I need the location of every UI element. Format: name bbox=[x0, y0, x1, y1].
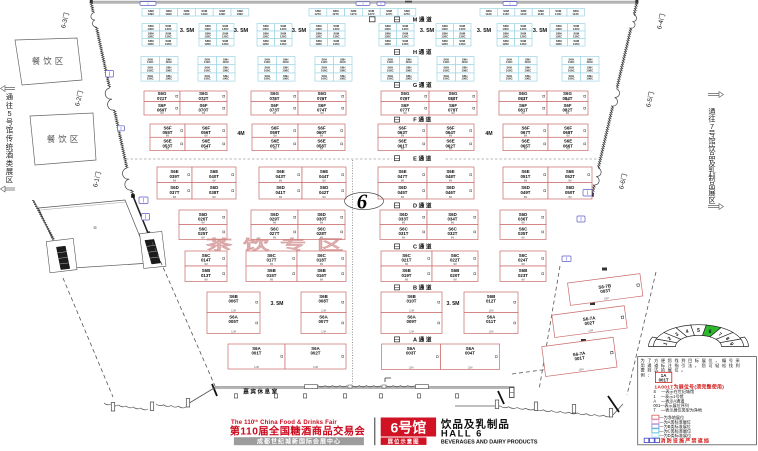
svg-text:6M: 6M bbox=[320, 279, 323, 282]
svg-text:展位示意图: 展位示意图 bbox=[388, 437, 420, 445]
svg-text:130C: 130C bbox=[333, 27, 340, 31]
svg-text:A通道: A通道 bbox=[413, 336, 433, 344]
svg-text:139C: 139C bbox=[165, 12, 172, 16]
svg-text:6M: 6M bbox=[401, 180, 404, 183]
svg-text:130C: 130C bbox=[573, 27, 580, 31]
svg-text:108C: 108C bbox=[461, 68, 468, 72]
svg-text:047T: 047T bbox=[397, 174, 407, 179]
svg-text:6M: 6M bbox=[273, 99, 276, 102]
svg-text:6M: 6M bbox=[405, 279, 408, 282]
svg-text:049T: 049T bbox=[520, 190, 530, 195]
svg-text:T —表示展位类型为净地: T —表示展位类型为净地 bbox=[653, 406, 702, 412]
svg-text:108C: 108C bbox=[264, 68, 271, 72]
svg-text:139C: 139C bbox=[183, 12, 190, 16]
svg-text:成都世纪城新国际会展中心: 成都世纪城新国际会展中心 bbox=[257, 438, 341, 446]
svg-text:110C: 110C bbox=[461, 60, 468, 64]
svg-text:003T: 003T bbox=[406, 351, 416, 356]
svg-text:128C: 128C bbox=[573, 34, 580, 38]
svg-text:013T: 013T bbox=[201, 273, 211, 278]
svg-text:126C: 126C bbox=[459, 42, 466, 46]
svg-text:12M: 12M bbox=[489, 310, 494, 313]
svg-text:6M: 6M bbox=[201, 237, 204, 240]
svg-text:113C: 113C bbox=[538, 12, 545, 16]
svg-text:113C: 113C bbox=[503, 12, 510, 16]
svg-text:040T: 040T bbox=[209, 174, 219, 179]
svg-text:110C: 110C bbox=[282, 60, 289, 64]
svg-text:6M: 6M bbox=[568, 196, 571, 199]
svg-text:011T: 011T bbox=[486, 319, 496, 324]
svg-text:032T: 032T bbox=[447, 231, 457, 236]
svg-text:12M: 12M bbox=[604, 297, 609, 301]
svg-text:12M: 12M bbox=[588, 329, 593, 333]
svg-text:D通道: D通道 bbox=[413, 202, 433, 210]
svg-text:028T: 028T bbox=[316, 231, 326, 236]
svg-text:126C: 126C bbox=[333, 42, 340, 46]
svg-text:106C: 106C bbox=[405, 77, 412, 81]
svg-text:113C: 113C bbox=[555, 12, 562, 16]
svg-text:12M: 12M bbox=[313, 366, 318, 369]
svg-text:128C: 128C bbox=[502, 34, 509, 38]
svg-text:108C: 108C bbox=[147, 68, 154, 72]
svg-text:044T: 044T bbox=[319, 174, 329, 179]
svg-text:6M: 6M bbox=[521, 263, 524, 266]
svg-text:6M: 6M bbox=[273, 222, 276, 225]
svg-text:6M: 6M bbox=[201, 222, 204, 225]
svg-text:6M: 6M bbox=[449, 134, 452, 137]
svg-text:6M: 6M bbox=[566, 148, 569, 151]
svg-text:050T: 050T bbox=[565, 190, 575, 195]
svg-text:027T: 027T bbox=[269, 231, 279, 236]
svg-text:130C: 130C bbox=[280, 27, 287, 31]
svg-text:110C: 110C bbox=[165, 60, 172, 64]
svg-text:130C: 130C bbox=[555, 27, 562, 31]
svg-text:108C: 108C bbox=[443, 68, 450, 72]
svg-text:024T: 024T bbox=[518, 258, 528, 263]
svg-text:M通道: M通道 bbox=[413, 16, 434, 24]
svg-text:6M: 6M bbox=[449, 180, 452, 183]
svg-text:051T: 051T bbox=[520, 174, 530, 179]
svg-text:128C: 128C bbox=[402, 34, 409, 38]
svg-text:106C: 106C bbox=[568, 77, 575, 81]
svg-text:6M: 6M bbox=[279, 196, 282, 199]
svg-text:106C: 106C bbox=[387, 77, 394, 81]
svg-text:3. 5M: 3. 5M bbox=[477, 28, 492, 34]
svg-text:6M: 6M bbox=[524, 196, 527, 199]
svg-text:6M: 6M bbox=[405, 263, 408, 266]
svg-text:110C: 110C bbox=[405, 60, 412, 64]
svg-text:128C: 128C bbox=[315, 34, 322, 38]
svg-text:HALL 6: HALL 6 bbox=[441, 429, 483, 440]
svg-text:6M: 6M bbox=[202, 112, 205, 115]
svg-text:005T: 005T bbox=[228, 319, 238, 324]
svg-text:6M: 6M bbox=[320, 263, 323, 266]
svg-text:12M: 12M bbox=[231, 331, 236, 334]
svg-text:039T: 039T bbox=[169, 174, 179, 179]
svg-text:128C: 128C bbox=[333, 34, 340, 38]
svg-text:6M: 6M bbox=[320, 99, 323, 102]
svg-text:6M: 6M bbox=[204, 263, 207, 266]
svg-text:6M: 6M bbox=[401, 196, 404, 199]
svg-text:015T: 015T bbox=[266, 273, 276, 278]
svg-text:126C: 126C bbox=[402, 42, 409, 46]
svg-text:110C: 110C bbox=[524, 60, 531, 64]
svg-text:消防设施严禁遮挡: 消防设施严禁遮挡 bbox=[661, 437, 711, 444]
svg-text:6M: 6M bbox=[166, 148, 169, 151]
svg-text:023T: 023T bbox=[518, 273, 528, 278]
svg-text:6M: 6M bbox=[204, 279, 207, 282]
svg-text:038T: 038T bbox=[209, 190, 219, 195]
svg-text:6M: 6M bbox=[521, 279, 524, 282]
svg-text:108C: 108C bbox=[568, 68, 575, 72]
svg-text:6M: 6M bbox=[270, 263, 273, 266]
svg-text:108C: 108C bbox=[282, 68, 289, 72]
svg-text:12M: 12M bbox=[254, 366, 259, 369]
svg-text:001T: 001T bbox=[659, 377, 669, 382]
svg-text:⊠: ⊠ bbox=[93, 225, 96, 230]
svg-text:127C: 127C bbox=[404, 12, 411, 16]
svg-text:6M: 6M bbox=[204, 148, 207, 151]
svg-text:4M: 4M bbox=[485, 131, 492, 137]
svg-text:130C: 130C bbox=[502, 27, 509, 31]
svg-text:128C: 128C bbox=[147, 34, 154, 38]
svg-text:例：: 例： bbox=[641, 371, 655, 378]
svg-text:108C: 108C bbox=[405, 68, 412, 72]
svg-text:110C: 110C bbox=[321, 60, 328, 64]
svg-text:106C: 106C bbox=[524, 77, 531, 81]
svg-text:3. 5M: 3. 5M bbox=[234, 28, 249, 34]
svg-text:106C: 106C bbox=[222, 77, 229, 81]
svg-text:022T: 022T bbox=[450, 258, 460, 263]
svg-text:C通道: C通道 bbox=[413, 243, 433, 251]
svg-text:126C: 126C bbox=[555, 42, 562, 46]
svg-text:052T: 052T bbox=[565, 174, 575, 179]
svg-text:113C: 113C bbox=[485, 12, 492, 16]
svg-text:G通道: G通道 bbox=[413, 81, 433, 89]
svg-text:130C: 130C bbox=[459, 27, 466, 31]
svg-text:139C: 139C bbox=[201, 12, 208, 16]
svg-text:012T: 012T bbox=[486, 299, 496, 304]
svg-text:127C: 127C bbox=[332, 12, 339, 16]
svg-text:127C: 127C bbox=[315, 12, 322, 16]
svg-text:6M: 6M bbox=[279, 180, 282, 183]
svg-text:6M: 6M bbox=[273, 112, 276, 115]
svg-text:127C: 127C bbox=[350, 12, 357, 16]
svg-text:126C: 126C bbox=[147, 42, 154, 46]
svg-text:016T: 016T bbox=[316, 273, 326, 278]
svg-text:第110届全国糖酒商品交易会: 第110届全国糖酒商品交易会 bbox=[230, 425, 366, 438]
svg-text:113C: 113C bbox=[572, 12, 579, 16]
svg-text:106C: 106C bbox=[264, 77, 271, 81]
svg-text:12M: 12M bbox=[321, 310, 326, 313]
svg-text:020T: 020T bbox=[450, 273, 460, 278]
svg-text:130C: 130C bbox=[222, 27, 229, 31]
svg-text:139C: 139C bbox=[237, 12, 244, 16]
svg-text:6M: 6M bbox=[568, 180, 571, 183]
svg-text:3. 5M: 3. 5M bbox=[447, 301, 460, 307]
svg-text:126C: 126C bbox=[222, 42, 229, 46]
svg-text:6M: 6M bbox=[320, 222, 323, 225]
svg-text:4M: 4M bbox=[237, 131, 244, 137]
svg-text:6M: 6M bbox=[451, 222, 454, 225]
svg-text:6M: 6M bbox=[453, 263, 456, 266]
svg-text:6M: 6M bbox=[204, 134, 207, 137]
svg-text:6M: 6M bbox=[566, 112, 569, 115]
svg-text:3. 5M: 3. 5M bbox=[271, 301, 284, 307]
svg-text:110C: 110C bbox=[568, 60, 575, 64]
svg-text:12M: 12M bbox=[409, 331, 414, 334]
svg-text:108C: 108C bbox=[222, 68, 229, 72]
svg-text:106C: 106C bbox=[165, 77, 172, 81]
svg-text:6M: 6M bbox=[402, 237, 405, 240]
svg-text:108C: 108C bbox=[204, 68, 211, 72]
svg-text:108C: 108C bbox=[165, 68, 172, 72]
svg-text:6M: 6M bbox=[451, 99, 454, 102]
svg-text:6M: 6M bbox=[521, 112, 524, 115]
svg-text:130C: 130C bbox=[315, 27, 322, 31]
svg-text:12M: 12M bbox=[409, 310, 414, 313]
svg-text:128C: 128C bbox=[520, 34, 527, 38]
svg-text:126C: 126C bbox=[204, 42, 211, 46]
svg-text:108C: 108C bbox=[524, 68, 531, 72]
svg-text:130C: 130C bbox=[520, 27, 527, 31]
svg-text:茶饮专区: 茶饮专区 bbox=[206, 237, 354, 252]
svg-text:130C: 130C bbox=[262, 27, 269, 31]
svg-text:6M: 6M bbox=[449, 196, 452, 199]
svg-text:6M: 6M bbox=[202, 99, 205, 102]
svg-text:The 110th China Food & Drinks: The 110th China Food & Drinks Fair bbox=[231, 419, 337, 426]
svg-text:108C: 108C bbox=[321, 68, 328, 72]
svg-text:B通道: B通道 bbox=[413, 284, 433, 292]
svg-text:046T: 046T bbox=[445, 190, 455, 195]
svg-text:12M: 12M bbox=[489, 331, 494, 334]
svg-text:126C: 126C bbox=[502, 42, 509, 46]
svg-text:110C: 110C bbox=[506, 60, 513, 64]
svg-text:130C: 130C bbox=[441, 27, 448, 31]
svg-text:035T: 035T bbox=[518, 231, 528, 236]
svg-text:128C: 128C bbox=[384, 34, 391, 38]
svg-text:108C: 108C bbox=[339, 68, 346, 72]
svg-text:—为D类标准展位: —为D类标准展位 bbox=[660, 432, 692, 438]
svg-text:5: 5 bbox=[697, 328, 700, 334]
svg-text:3. 5M: 3. 5M bbox=[420, 28, 435, 34]
svg-text:6M: 6M bbox=[273, 134, 276, 137]
svg-text:126C: 126C bbox=[262, 42, 269, 46]
svg-text:3. 5M: 3. 5M bbox=[292, 28, 307, 34]
svg-text:6M: 6M bbox=[521, 237, 524, 240]
svg-text:6M: 6M bbox=[521, 99, 524, 102]
svg-text:110C: 110C bbox=[586, 60, 593, 64]
svg-text:130C: 130C bbox=[204, 27, 211, 31]
svg-text:106C: 106C bbox=[204, 77, 211, 81]
svg-text:025T: 025T bbox=[198, 231, 208, 236]
svg-text:F通道: F通道 bbox=[413, 116, 432, 124]
svg-text:110C: 110C bbox=[443, 60, 450, 64]
svg-text:004T: 004T bbox=[465, 351, 475, 356]
svg-text:126C: 126C bbox=[315, 42, 322, 46]
svg-text:130C: 130C bbox=[165, 27, 172, 31]
svg-text:BEVERAGES AND DAIRY PRODUCTS: BEVERAGES AND DAIRY PRODUCTS bbox=[441, 440, 538, 446]
svg-text:126C: 126C bbox=[520, 42, 527, 46]
svg-text:6M: 6M bbox=[401, 134, 404, 137]
svg-text:嘉宾休息室: 嘉宾休息室 bbox=[242, 388, 278, 396]
svg-text:12M: 12M bbox=[409, 367, 414, 370]
svg-text:区: 区 bbox=[6, 176, 14, 185]
svg-text:130C: 130C bbox=[147, 27, 154, 31]
svg-text:6M: 6M bbox=[320, 148, 323, 151]
svg-text:130C: 130C bbox=[384, 27, 391, 31]
svg-text:6M: 6M bbox=[320, 134, 323, 137]
svg-text:002T: 002T bbox=[310, 351, 320, 356]
svg-text:007T: 007T bbox=[318, 319, 328, 324]
svg-text:108C: 108C bbox=[586, 68, 593, 72]
svg-text:6M: 6M bbox=[451, 112, 454, 115]
svg-text:6M: 6M bbox=[212, 196, 215, 199]
svg-text:6M: 6M bbox=[524, 180, 527, 183]
svg-text:126C: 126C bbox=[280, 42, 287, 46]
svg-text:12M: 12M bbox=[321, 331, 326, 334]
svg-text:6M: 6M bbox=[401, 148, 404, 151]
svg-text:126C: 126C bbox=[573, 42, 580, 46]
svg-text:106C: 106C bbox=[321, 77, 328, 81]
svg-text:128C: 128C bbox=[459, 34, 466, 38]
svg-text:6M: 6M bbox=[322, 180, 325, 183]
svg-text:3. 5M: 3. 5M bbox=[180, 28, 195, 34]
svg-text:6M: 6M bbox=[524, 134, 527, 137]
svg-text:128C: 128C bbox=[222, 34, 229, 38]
svg-text:H通道: H通道 bbox=[413, 48, 433, 56]
svg-text:6M: 6M bbox=[322, 196, 325, 199]
svg-text:009T: 009T bbox=[406, 319, 416, 324]
svg-text:6M: 6M bbox=[566, 99, 569, 102]
svg-text:餐饮区: 餐饮区 bbox=[47, 134, 82, 144]
svg-text:018T: 018T bbox=[316, 258, 326, 263]
svg-text:6M: 6M bbox=[160, 112, 163, 115]
svg-text:045T: 045T bbox=[397, 190, 407, 195]
svg-text:110C: 110C bbox=[204, 60, 211, 64]
svg-text:127C: 127C bbox=[368, 12, 375, 16]
svg-text:017T: 017T bbox=[266, 258, 276, 263]
svg-text:043T: 043T bbox=[275, 174, 285, 179]
svg-text:127C: 127C bbox=[386, 12, 393, 16]
svg-text:6M: 6M bbox=[566, 134, 569, 137]
svg-text:6M: 6M bbox=[521, 222, 524, 225]
svg-text:106C: 106C bbox=[443, 77, 450, 81]
svg-text:128C: 128C bbox=[441, 34, 448, 38]
svg-text:6M: 6M bbox=[273, 148, 276, 151]
svg-text:008T: 008T bbox=[318, 299, 328, 304]
svg-text:6M: 6M bbox=[173, 196, 176, 199]
svg-text:019T: 019T bbox=[401, 273, 411, 278]
svg-text:139C: 139C bbox=[219, 12, 226, 16]
svg-text:6M: 6M bbox=[212, 180, 215, 183]
svg-text:6: 6 bbox=[357, 190, 368, 214]
svg-text:6M: 6M bbox=[160, 99, 163, 102]
svg-text:6M: 6M bbox=[403, 99, 406, 102]
svg-text:6M: 6M bbox=[524, 148, 527, 151]
svg-text:110C: 110C bbox=[147, 60, 154, 64]
svg-text:139C: 139C bbox=[148, 12, 155, 16]
svg-text:12M: 12M bbox=[578, 368, 583, 372]
svg-text:110C: 110C bbox=[387, 60, 394, 64]
svg-text:106C: 106C bbox=[147, 77, 154, 81]
svg-text:037T: 037T bbox=[169, 190, 179, 195]
svg-text:031T: 031T bbox=[398, 231, 408, 236]
svg-text:106C: 106C bbox=[282, 77, 289, 81]
svg-text:126C: 126C bbox=[165, 42, 172, 46]
svg-text:6M: 6M bbox=[403, 112, 406, 115]
svg-text:6M: 6M bbox=[402, 222, 405, 225]
svg-text:108C: 108C bbox=[387, 68, 394, 72]
svg-text:6M: 6M bbox=[451, 237, 454, 240]
svg-text:6M: 6M bbox=[166, 134, 169, 137]
svg-text:041T: 041T bbox=[275, 190, 285, 195]
svg-text:130C: 130C bbox=[402, 27, 409, 31]
svg-text:006T: 006T bbox=[228, 299, 238, 304]
svg-text:128C: 128C bbox=[165, 34, 172, 38]
svg-text:106C: 106C bbox=[586, 77, 593, 81]
svg-text:12M: 12M bbox=[468, 367, 473, 370]
svg-text:6M: 6M bbox=[173, 180, 176, 183]
svg-text:106C: 106C bbox=[339, 77, 346, 81]
svg-text:128C: 128C bbox=[262, 34, 269, 38]
svg-text:126C: 126C bbox=[384, 42, 391, 46]
svg-text:108C: 108C bbox=[506, 68, 513, 72]
svg-text:区: 区 bbox=[708, 196, 715, 205]
svg-text:6M: 6M bbox=[270, 279, 273, 282]
svg-text:110C: 110C bbox=[264, 60, 271, 64]
svg-text:6号馆: 6号馆 bbox=[391, 420, 427, 436]
svg-text:6M: 6M bbox=[449, 148, 452, 151]
svg-text:010T: 010T bbox=[406, 299, 416, 304]
svg-text:3. 5M: 3. 5M bbox=[533, 28, 548, 34]
svg-text:128C: 128C bbox=[555, 34, 562, 38]
svg-text:128C: 128C bbox=[280, 34, 287, 38]
svg-text:126C: 126C bbox=[441, 42, 448, 46]
svg-text:6M: 6M bbox=[453, 279, 456, 282]
svg-text:014T: 014T bbox=[201, 258, 211, 263]
svg-text:001T: 001T bbox=[251, 351, 261, 356]
svg-text:042T: 042T bbox=[319, 190, 329, 195]
svg-text:048T: 048T bbox=[445, 174, 455, 179]
svg-text:餐饮区: 餐饮区 bbox=[32, 56, 67, 66]
svg-text:E通道: E通道 bbox=[413, 154, 433, 162]
svg-text:110C: 110C bbox=[339, 60, 346, 64]
svg-text:6M: 6M bbox=[320, 112, 323, 115]
svg-text:021T: 021T bbox=[401, 258, 411, 263]
svg-text:106C: 106C bbox=[506, 77, 513, 81]
svg-text:12M: 12M bbox=[231, 310, 236, 313]
svg-text:128C: 128C bbox=[204, 34, 211, 38]
svg-text:106C: 106C bbox=[461, 77, 468, 81]
svg-text:110C: 110C bbox=[222, 60, 229, 64]
svg-text:113C: 113C bbox=[520, 12, 527, 16]
